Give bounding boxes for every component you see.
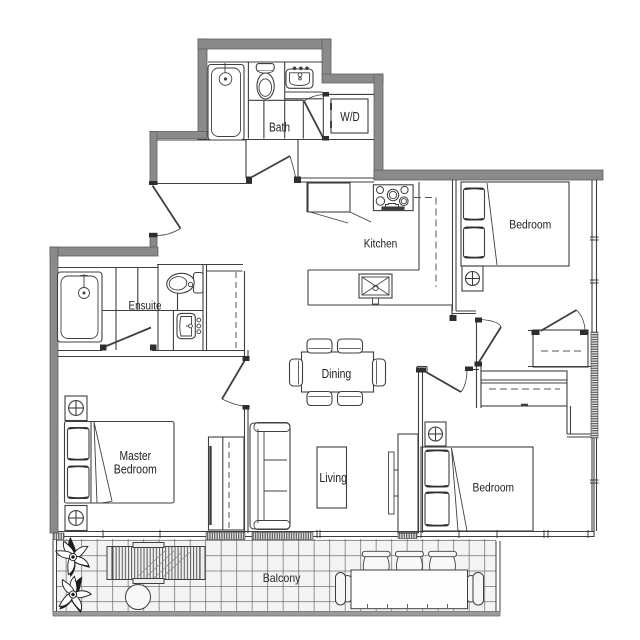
svg-text:Balcony: Balcony [263, 571, 301, 585]
svg-text:Bedroom: Bedroom [473, 481, 515, 495]
svg-text:Bedroom: Bedroom [509, 217, 551, 231]
svg-text:W/D: W/D [340, 110, 360, 124]
svg-text:Ensuite: Ensuite [129, 298, 162, 312]
svg-text:Master: Master [120, 449, 152, 463]
svg-text:Bath: Bath [269, 121, 290, 135]
svg-text:Kitchen: Kitchen [364, 236, 398, 250]
svg-text:Bedroom: Bedroom [114, 463, 157, 477]
svg-text:Living: Living [319, 471, 347, 485]
svg-text:Dining: Dining [322, 367, 352, 381]
